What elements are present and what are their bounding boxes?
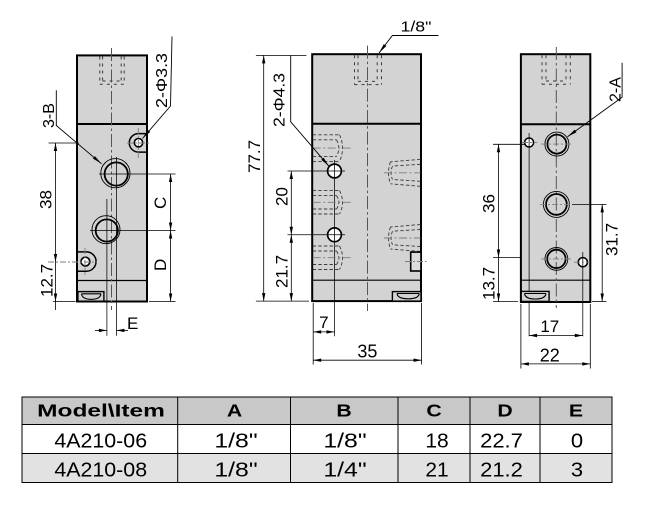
svg-text:21.7: 21.7 [273,255,292,288]
svg-text:1/8": 1/8" [214,459,257,481]
svg-text:E: E [127,314,138,333]
svg-text:A: A [227,401,242,421]
svg-text:22: 22 [540,346,560,366]
svg-text:4A210-08: 4A210-08 [54,459,147,481]
svg-text:1/8": 1/8" [323,430,366,452]
svg-text:13.7: 13.7 [480,267,499,300]
svg-text:18: 18 [425,430,448,452]
svg-text:Model\Item: Model\Item [37,401,165,421]
svg-text:21.2: 21.2 [480,459,523,481]
svg-text:2-Φ4.3: 2-Φ4.3 [272,73,289,127]
svg-text:B: B [336,401,351,421]
svg-text:31.7: 31.7 [603,223,622,256]
svg-text:77.7: 77.7 [245,140,264,173]
svg-text:3-B: 3-B [41,103,58,128]
svg-text:35: 35 [357,342,377,362]
svg-text:D: D [497,401,512,421]
svg-text:D: D [151,259,170,271]
svg-text:3: 3 [571,459,583,481]
svg-text:C: C [426,401,441,421]
svg-text:38: 38 [37,190,56,209]
svg-text:7: 7 [319,313,328,332]
svg-text:E: E [569,401,583,421]
svg-text:2-Φ3.3: 2-Φ3.3 [154,53,171,108]
svg-text:4A210-06: 4A210-06 [54,430,147,452]
svg-text:1/4": 1/4" [323,459,366,481]
svg-text:12.7: 12.7 [38,264,57,297]
svg-text:17: 17 [540,317,559,336]
svg-text:21: 21 [425,459,448,481]
svg-text:22.7: 22.7 [480,430,523,452]
svg-text:36: 36 [480,194,499,213]
svg-text:C: C [151,197,170,209]
svg-text:1/8": 1/8" [401,19,432,36]
svg-text:1/8": 1/8" [214,430,257,452]
svg-text:20: 20 [273,187,292,206]
svg-text:0: 0 [571,430,583,452]
